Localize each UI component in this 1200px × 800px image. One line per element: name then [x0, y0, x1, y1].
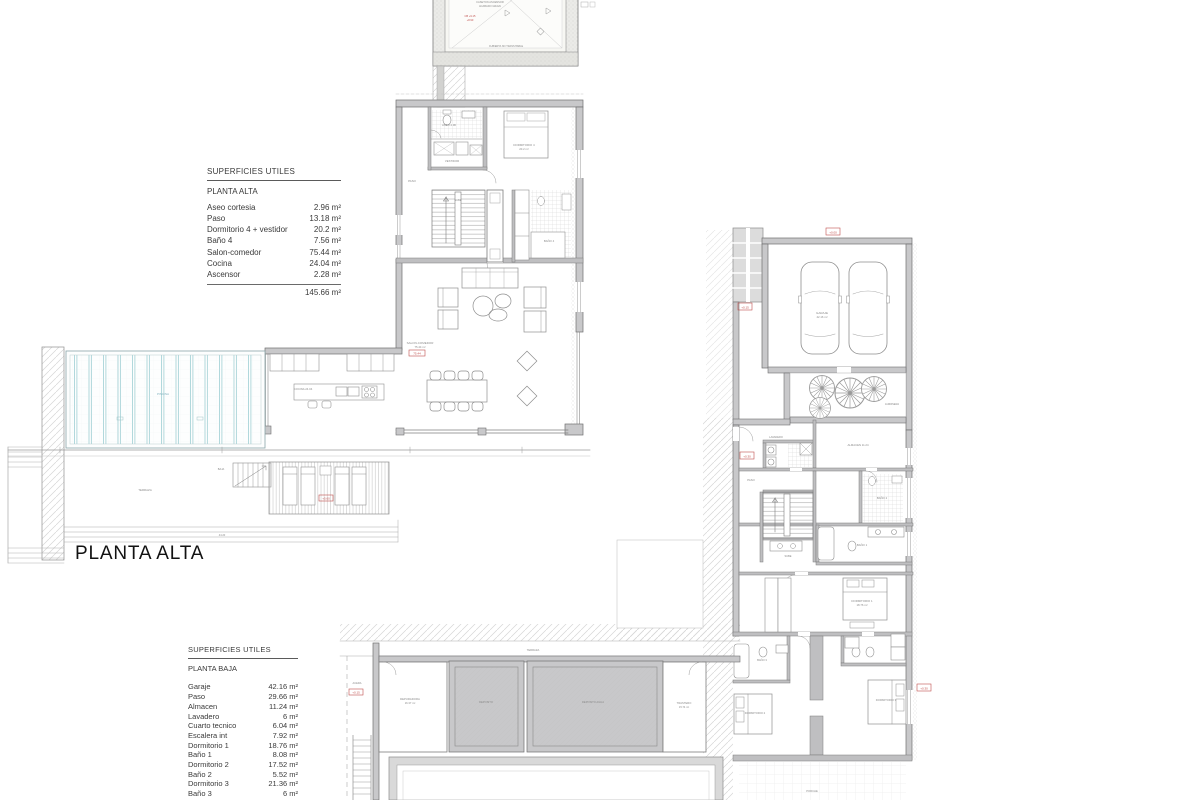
table-row: Almacen11.24 m²: [188, 702, 298, 712]
cocina-label: COCINA 24.04: [294, 387, 313, 391]
table-row: Baño 18.08 m²: [188, 750, 298, 760]
bano-suite: [845, 634, 905, 660]
table-row: Cocina24.04 m²: [207, 258, 341, 269]
floorplan-drawing: CASETON ASCENSORACABADO GRAVACB +9.15+8.…: [0, 0, 1200, 800]
elevator-shaft: [487, 190, 503, 262]
level-marker-text: 75.44: [413, 352, 421, 356]
porche-label: PORCHE: [806, 789, 818, 793]
mini-red2-label: +8.90: [467, 18, 474, 22]
jardinera-label: JARDINERA: [885, 403, 900, 406]
table-row: Paso29.66 m²: [188, 692, 298, 702]
sube-alta-label: SUBE: [454, 198, 461, 202]
service-block: [347, 643, 740, 800]
superficies-table-alta: SUPERFICIES UTILES PLANTA ALTA Aseo cort…: [207, 166, 341, 298]
table-row: Baño 25.52 m²: [188, 770, 298, 780]
tree-icon: [862, 377, 887, 402]
table-row: Garaje42.16 m²: [188, 682, 298, 692]
salon2-label: 75.44 m²: [414, 345, 425, 349]
esc-terraza-label: BAJA: [218, 467, 225, 471]
level-marker-text: +5.60: [322, 497, 330, 501]
level-marker-text: +0.15: [352, 691, 360, 695]
table-row: Dormitorio 217.52 m²: [188, 760, 298, 770]
bano2-label: BAÑO 2: [877, 495, 888, 500]
dormitorio4b-label: 20.2 m²: [519, 147, 529, 151]
pool-terrace: [8, 347, 590, 563]
table-row: Dormitorio 4 + vestidor20.2 m²: [207, 224, 341, 235]
escalera-int-label: SUBE: [784, 554, 791, 558]
tree-icon: [810, 376, 835, 401]
porch-paving: [739, 761, 906, 800]
dormitorio1: [765, 578, 887, 632]
table-row: Dormitorio 321.36 m²: [188, 779, 298, 789]
shower: [531, 232, 565, 258]
mini-roof-plan: [433, 0, 595, 107]
blueprint-page: CASETON ASCENSORACABADO GRAVACB +9.15+8.…: [0, 0, 1200, 800]
level-marker-text: +0.30: [920, 687, 928, 691]
exterior-ladder: [353, 735, 371, 800]
depuradora2-label: 16.37 m²: [405, 701, 416, 705]
dormitorio3-label: DORMITORIO 3: [876, 698, 897, 702]
mini-top1-label: CASETON ASCENSOR: [476, 0, 504, 4]
entry-steps: [733, 228, 763, 420]
mini-bottom-label: CUBIERTA NO TRANSITABLE: [489, 45, 524, 48]
paso-baja-label: PASO: [747, 478, 755, 482]
plan-title: PLANTA ALTA: [75, 543, 204, 565]
level-marker-text: +0.00: [829, 231, 837, 235]
planta-alta-plan: [8, 94, 590, 563]
bano4-label: BAÑO 4: [544, 238, 555, 243]
acera-label: ACERA: [353, 681, 362, 685]
wall: [396, 100, 583, 107]
sink: [462, 111, 475, 118]
table-title: SUPERFICIES UTILES: [188, 645, 298, 659]
tree-icon: [810, 398, 831, 419]
depuradora-label: DEPURADORA: [400, 697, 420, 701]
kitchen: [270, 354, 394, 408]
salon-furniture: [427, 268, 546, 411]
lower-patio: [617, 540, 703, 628]
table-row: Escalera int7.92 m²: [188, 731, 298, 741]
mini-top2-label: ACABADO GRAVA: [479, 4, 501, 8]
level-marker-text: +0.30: [743, 455, 751, 459]
dormitorio3: [868, 680, 906, 724]
table-row: Aseo cortesia2.96 m²: [207, 202, 341, 213]
terraza-baja-label: TERRAZA: [527, 648, 540, 652]
dining-table: [427, 380, 487, 402]
stairs-baja: [763, 492, 813, 538]
superficies-table-baja: SUPERFICIES UTILES PLANTA BAJA Garaje42.…: [188, 645, 298, 800]
aseo-label: ASEO 2.96: [442, 123, 456, 127]
lavadero-label: LAVADERO: [769, 435, 783, 439]
car: [847, 262, 890, 354]
bano3-label: BAÑO 3: [757, 657, 767, 662]
table-row: Cuarto tecnico6.04 m²: [188, 721, 298, 731]
table-row: Dormitorio 118.76 m²: [188, 741, 298, 751]
terrace-stairs: [233, 463, 271, 487]
planter-patio: [784, 373, 906, 423]
car: [799, 262, 842, 354]
deposito1-label: DEPOSITO: [479, 700, 493, 704]
terraza-alta-label: TERRAZA: [138, 488, 152, 492]
depuradora-room: [379, 662, 447, 752]
mini-red1-label: CB +9.15: [465, 14, 476, 18]
vestidor-label: VESTIDOR: [445, 159, 459, 163]
deposito2-label: DEPOSITO AGUA: [582, 700, 604, 704]
garaje2-label: 42.16 m²: [816, 315, 827, 319]
level-marker-text: +0.15: [741, 306, 749, 310]
table-row: Salon-comedor75.44 m²: [207, 247, 341, 258]
lavadero: [766, 443, 812, 467]
piscina-label: PISCINA: [157, 392, 169, 396]
bano1-label: BAÑO 1: [857, 542, 868, 547]
pool-basin: [389, 757, 723, 800]
table-row: Ascensor2.28 m²: [207, 269, 341, 280]
table-subtitle: PLANTA ALTA: [207, 186, 341, 197]
table-row: Lavadero6 m²: [188, 712, 298, 722]
table-subtitle: PLANTA BAJA: [188, 664, 298, 674]
dormitorio2-label: DORMITORIO 2: [745, 711, 766, 715]
table-row: Baño 36 m²: [188, 789, 298, 799]
trastero2-label: 15.74 m²: [679, 705, 689, 709]
dim-terraza-label: 44.20: [219, 533, 226, 537]
deck-table: [320, 466, 331, 475]
retaining-wall-hatch: [42, 347, 64, 560]
almacen-label: ALMACEN 11.24: [847, 443, 869, 447]
table-total: 145.66 m²: [207, 284, 341, 298]
trastero1-label: TRASTERO: [677, 701, 692, 705]
paso-alta-label: PASO: [408, 179, 417, 183]
table-title: SUPERFICIES UTILES: [207, 166, 341, 181]
dormitorio1b-label: 18.76 m²: [856, 603, 867, 607]
table-row: Paso13.18 m²: [207, 213, 341, 224]
tree-icon: [835, 378, 865, 408]
table-row: Baño 47.56 m²: [207, 235, 341, 246]
